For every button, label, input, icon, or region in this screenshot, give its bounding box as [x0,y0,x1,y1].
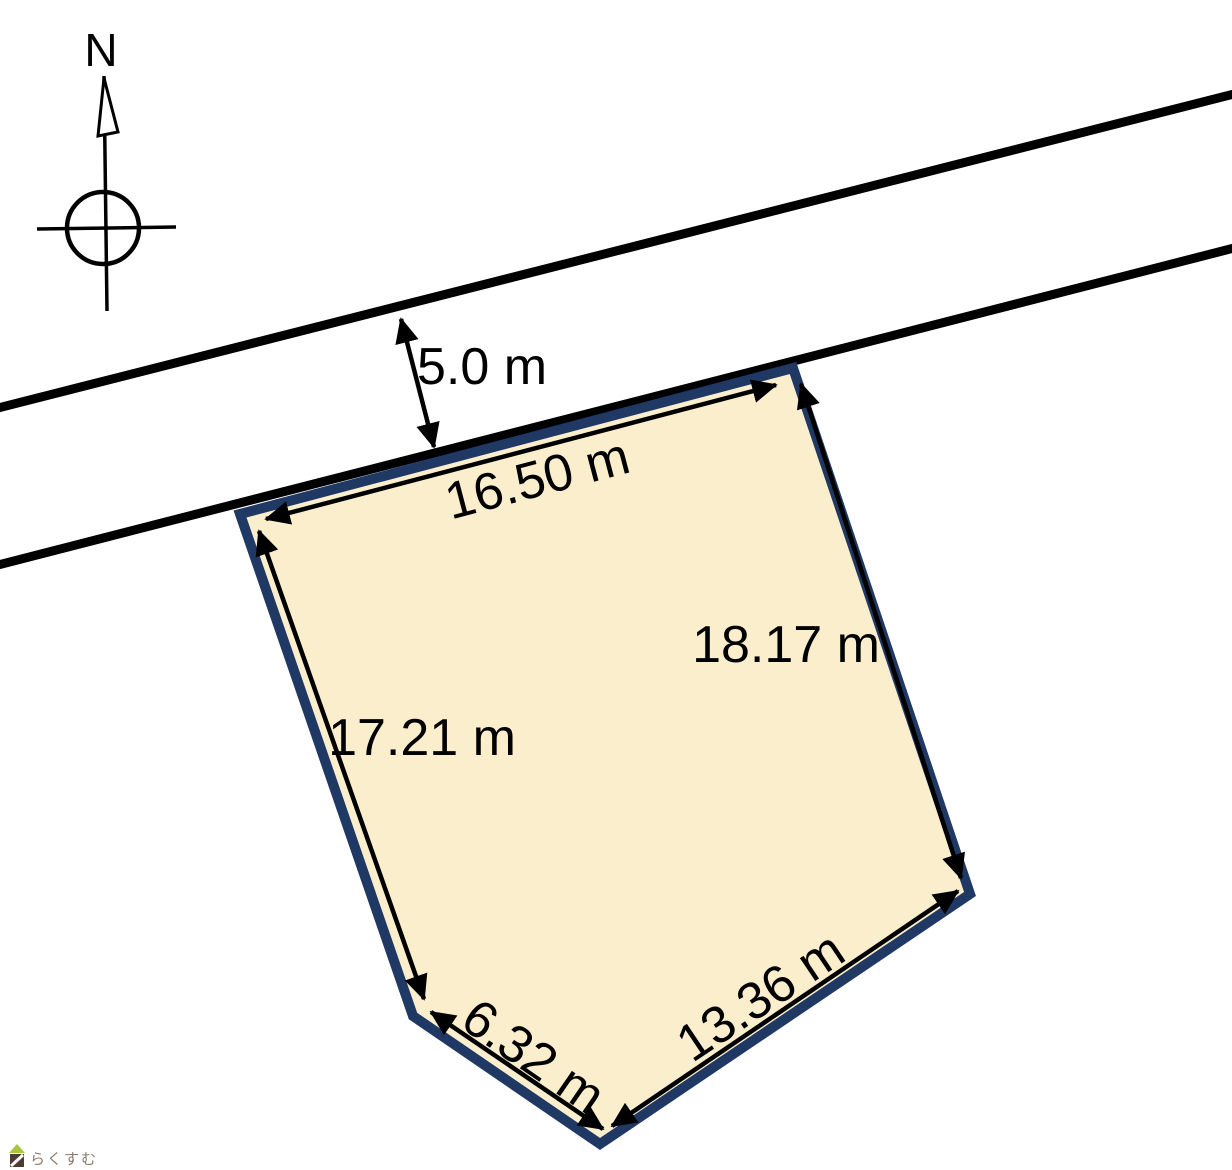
dim-label-right: 18.17 m [692,616,880,674]
compass-north-label: N [84,24,117,76]
dim-label-left: 17.21 m [328,709,516,767]
watermark-text: らくすむ [30,1151,98,1168]
site-plan-drawing: 5.0 m 16.50 m 18.17 m 17.21 m 6.32 m 13.… [0,0,1232,1170]
watermark-logo: らくすむ [9,1144,98,1168]
logo-roof-icon [9,1144,25,1153]
compass-crossbar [37,227,176,229]
compass-needle-flag-icon [98,78,118,136]
road-edge-upper [0,93,1232,409]
compass: N [37,24,176,311]
site-plan-page: 5.0 m 16.50 m 18.17 m 17.21 m 6.32 m 13.… [0,0,1232,1170]
dim-label-road-width: 5.0 m [417,338,547,396]
